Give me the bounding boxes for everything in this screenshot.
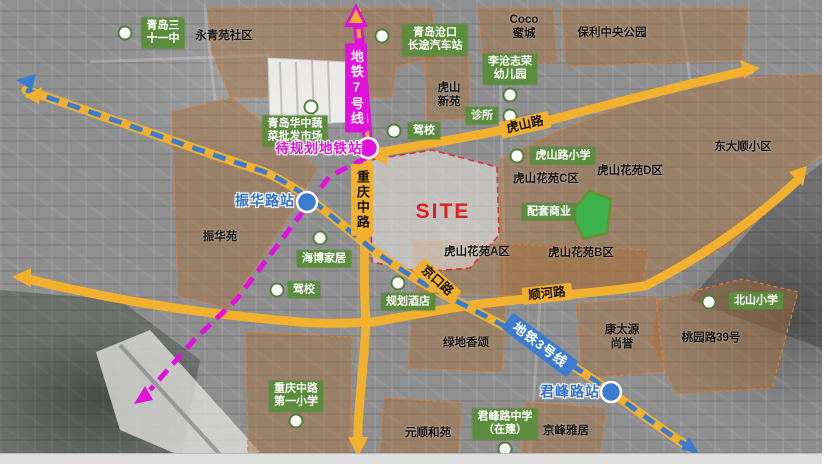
poi-dot-icon xyxy=(703,296,716,309)
poi-label-driving-school-south: 驾校 xyxy=(288,281,320,298)
poi-label-clinic: 诊所 xyxy=(466,107,498,124)
area-label-yuanshunheyuan: 元顺和苑 xyxy=(405,426,451,440)
poi-label-hushanlu-primary: 虎山路小学 xyxy=(531,147,596,164)
area-label-huayuan-b: 虎山花苑B区 xyxy=(548,246,614,260)
poi-label-qingdao-no31-school: 青岛三 十一中 xyxy=(142,18,185,49)
area-label-lvdi-xiangsong: 绿地香颂 xyxy=(443,336,489,350)
shunhe-west-arrow-icon xyxy=(12,268,31,287)
poi-dot-icon xyxy=(271,284,284,297)
poi-dot-icon xyxy=(388,125,401,138)
metro-line7-label: 地铁7号线 xyxy=(345,44,367,133)
poi-label-planned-hotel: 规划酒店 xyxy=(381,293,435,310)
area-label-yongqingyuan: 永青苑社区 xyxy=(195,29,253,43)
area-label-taoyuanlu39: 桃园路39号 xyxy=(682,331,741,345)
poi-dot-icon xyxy=(511,150,524,163)
site-text: SITE xyxy=(416,199,471,225)
poi-dot-icon xyxy=(305,101,318,114)
poi-label-beishan-primary: 北山小学 xyxy=(729,292,783,309)
area-label-kangtaiyuan: 康太源 尚誉 xyxy=(605,323,640,351)
area-label-poly-central-park: 保利中央公园 xyxy=(578,26,647,40)
map-right-margin xyxy=(822,0,826,464)
area-label-coco: Coco 蜜城 xyxy=(510,13,539,41)
poi-label-driving-school-north: 驾校 xyxy=(408,122,440,139)
map-bottom-margin xyxy=(0,453,826,464)
poi-label-junfenglu-middle-school: 君峰路中学 （在建） xyxy=(473,409,538,440)
area-label-zhenhuayuan: 振华苑 xyxy=(203,230,238,244)
area-label-dongdashun: 东大顺小区 xyxy=(714,140,772,154)
area-label-huayuan-c: 虎山花苑C区 xyxy=(513,172,579,186)
poi-dot-icon xyxy=(290,415,303,428)
poi-dot-icon xyxy=(392,277,405,290)
road-label-chongqingzhonglu: 重庆中路 xyxy=(351,164,373,236)
poi-label-cangkou-bus-station: 青岛沧口 长途汽车站 xyxy=(403,25,468,56)
station-label-junfeng: 君峰路站 xyxy=(540,383,600,400)
poi-dot-icon xyxy=(376,30,389,43)
site-location-map: 青岛三 十一中 青岛沧口 长途汽车站 李沧志荣 幼儿园 诊所 驾校 青岛华中蔬 … xyxy=(0,0,826,464)
station-label-planned: 待规划地铁站 xyxy=(276,141,363,157)
poi-label-kindergarten: 李沧志荣 幼儿园 xyxy=(483,54,537,85)
poi-label-haibo-furniture: 海博家居 xyxy=(297,250,351,267)
area-label-hushan-xinyuan: 虎山 新苑 xyxy=(438,81,461,109)
metro-station-icon-junfeng xyxy=(601,382,621,402)
area-label-jingfengyaju: 京峰雅居 xyxy=(543,424,589,438)
map-graphics-layer xyxy=(0,0,826,464)
area-label-huayuan-a: 虎山花苑A区 xyxy=(444,245,510,259)
poi-label-chongqing-first-primary: 重庆中路 第一小学 xyxy=(269,381,323,412)
station-label-zhenhua: 振华路站 xyxy=(235,192,295,209)
poi-label-retail-support: 配套商业 xyxy=(522,203,576,220)
area-label-huayuan-d: 虎山花苑D区 xyxy=(597,164,663,178)
poi-dot-icon xyxy=(119,27,132,40)
poi-dot-icon xyxy=(314,232,327,245)
poi-dot-icon xyxy=(504,89,517,102)
metro-station-icon-zhenhua xyxy=(297,192,317,212)
